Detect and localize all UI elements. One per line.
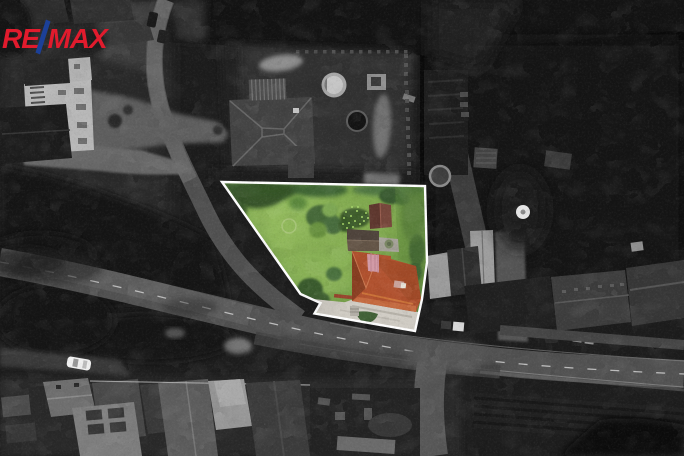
svg-text:MAX: MAX (48, 23, 111, 54)
svg-text:RE: RE (2, 23, 41, 54)
